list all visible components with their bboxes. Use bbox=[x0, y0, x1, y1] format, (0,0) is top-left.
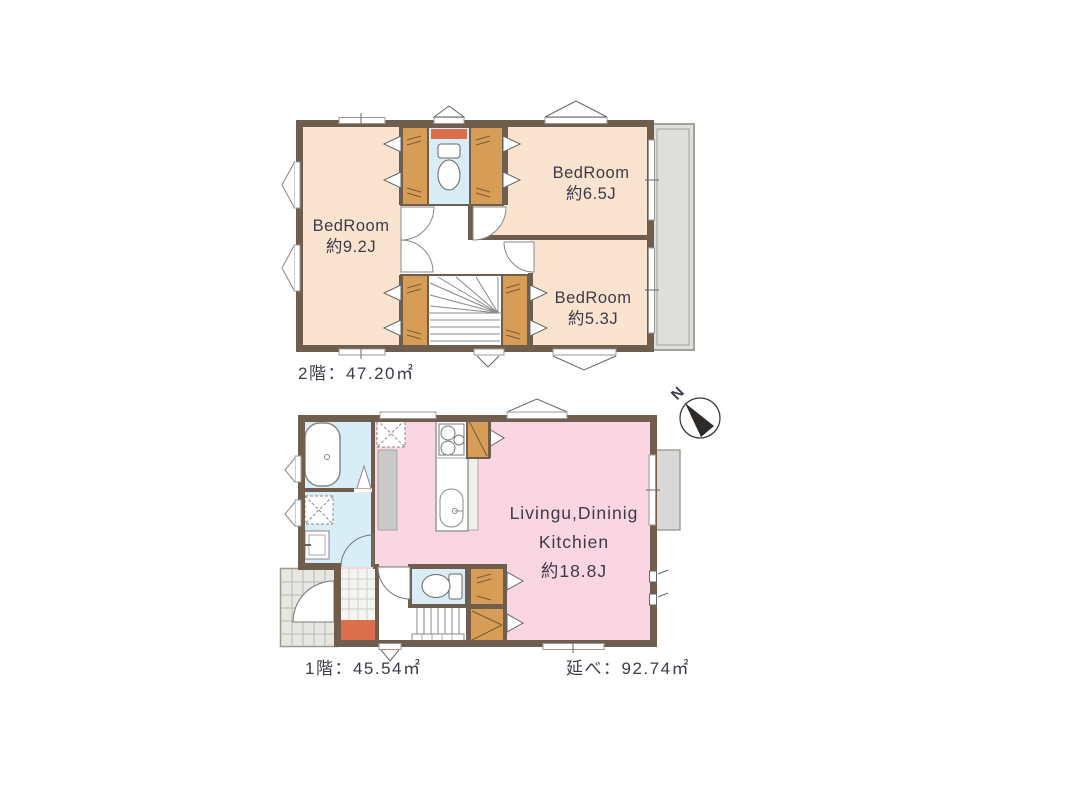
room-name: BedRoom bbox=[531, 163, 651, 184]
room-name-line2: Kitchien bbox=[494, 528, 654, 557]
stairs-1f bbox=[410, 608, 466, 643]
stair-rail bbox=[412, 634, 464, 641]
first-floor-area-label: 1階：45.54㎡ bbox=[305, 658, 422, 679]
bedroom-top-right-label: BedRoom 約6.5J bbox=[531, 163, 651, 205]
kitchen-island bbox=[436, 421, 468, 531]
washroom bbox=[299, 492, 373, 567]
floorplan-page: BedRoom 約9.2J BedRoom 約6.5J BedRoom 約5.3… bbox=[0, 0, 1079, 809]
toilet-room-1f bbox=[410, 568, 466, 606]
kitchen-cabinet bbox=[378, 450, 397, 530]
room-name: BedRoom bbox=[291, 216, 411, 237]
entrance-mat bbox=[340, 620, 375, 643]
bedroom-bottom-right-label: BedRoom 約5.3J bbox=[533, 288, 653, 330]
genkan bbox=[340, 569, 375, 643]
room-name-line1: Livingu,Dininig bbox=[494, 499, 654, 528]
second-floor-area-label: 2階：47.20㎡ bbox=[298, 363, 415, 384]
kitchen-sink-icon bbox=[440, 489, 463, 527]
total-area-label: 延べ：92.74㎡ bbox=[566, 658, 690, 679]
bedroom-left-label: BedRoom 約9.2J bbox=[291, 216, 411, 258]
room-name: BedRoom bbox=[533, 288, 653, 309]
stove-icon bbox=[439, 424, 464, 455]
bath-doorway bbox=[354, 489, 372, 493]
floorplan-drawing bbox=[0, 0, 1079, 809]
refrigerator-space-icon bbox=[377, 420, 405, 447]
toilet-icon bbox=[438, 144, 460, 190]
room-size: 約9.2J bbox=[291, 237, 411, 258]
toilet-room-2f bbox=[428, 127, 470, 205]
room-size: 約6.5J bbox=[531, 184, 651, 205]
room-size: 約18.8J bbox=[494, 557, 654, 586]
ldk-label: Livingu,Dininig Kitchien 約18.8J bbox=[494, 499, 654, 586]
bathroom bbox=[302, 419, 373, 490]
compass-icon bbox=[680, 398, 720, 438]
counter-orange bbox=[431, 129, 467, 139]
bathtub-icon bbox=[305, 423, 340, 486]
balcony bbox=[652, 124, 694, 350]
washing-machine-icon bbox=[305, 496, 333, 524]
room-size: 約5.3J bbox=[533, 309, 653, 330]
toilet-icon bbox=[422, 574, 462, 599]
stairs-2f bbox=[428, 275, 502, 346]
